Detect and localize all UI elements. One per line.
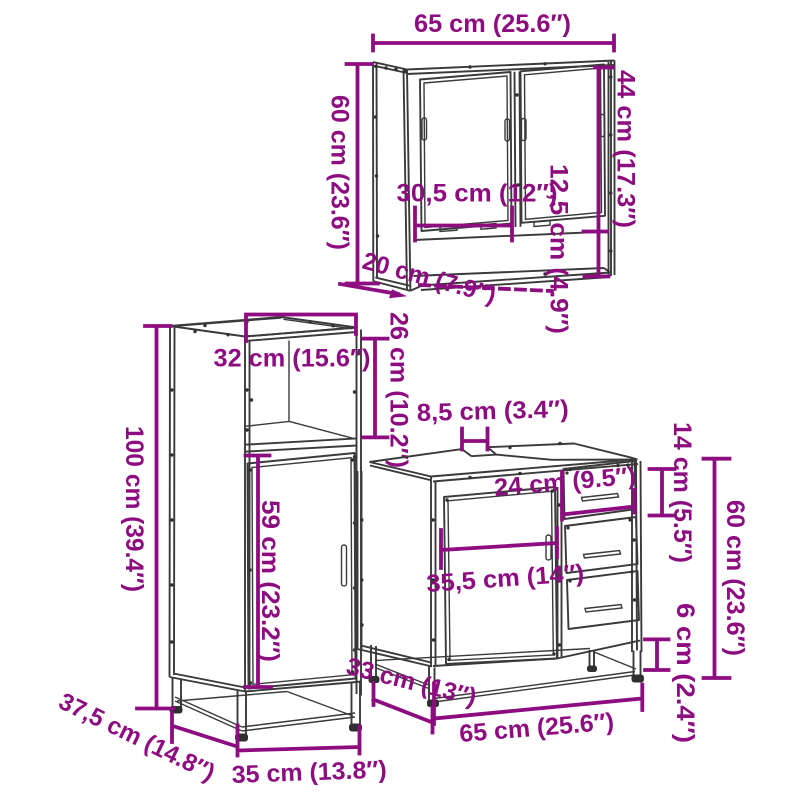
svg-text:65 cm (25.6″): 65 cm (25.6″) [414,11,571,38]
svg-text:30,5 cm (12″): 30,5 cm (12″) [397,181,558,208]
svg-text:59 cm (23.2″): 59 cm (23.2″) [256,500,283,662]
svg-text:100 cm (39.4″): 100 cm (39.4″) [120,426,147,592]
svg-text:26 cm (10.2″): 26 cm (10.2″) [385,312,412,468]
svg-text:60 cm (23.6″): 60 cm (23.6″) [326,95,353,250]
svg-text:44 cm (17.3″): 44 cm (17.3″) [612,70,639,228]
svg-text:8,5 cm (3.4″): 8,5 cm (3.4″) [416,396,569,427]
svg-text:60 cm (23.6″): 60 cm (23.6″) [721,500,748,656]
svg-text:6 cm (2.4″): 6 cm (2.4″) [671,603,698,743]
svg-text:35 cm (13.8″): 35 cm (13.8″) [231,757,387,789]
svg-text:32 cm (15.6″): 32 cm (15.6″) [214,346,371,373]
svg-text:14 cm (5.5″): 14 cm (5.5″) [668,422,695,563]
